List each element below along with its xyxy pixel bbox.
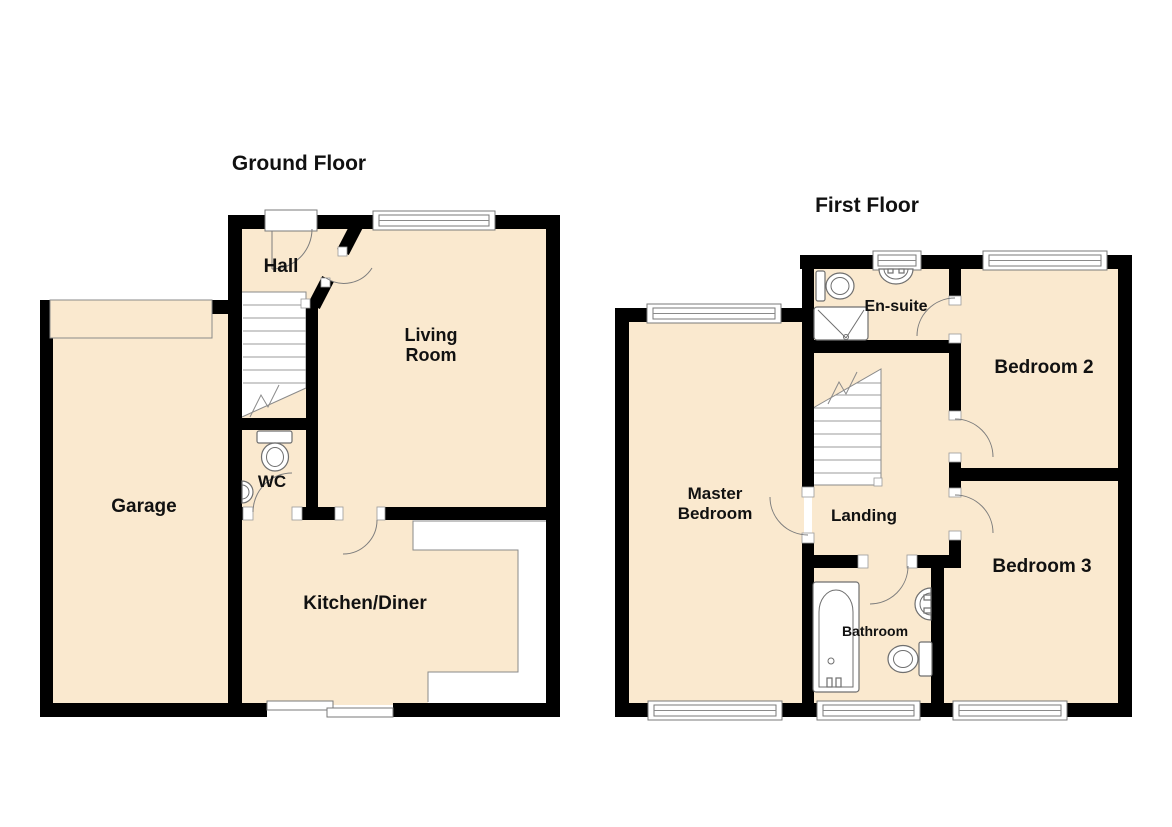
bathroom-label: Bathroom bbox=[842, 623, 908, 639]
first-floor-plan: First Floor En-suite Bedroom 2 Master Be… bbox=[615, 194, 1132, 720]
master-bedroom-label-line1: Master bbox=[688, 484, 743, 503]
floorplan-page: Ground Floor Hall Living Room Garage WC … bbox=[0, 0, 1172, 827]
landing-label: Landing bbox=[831, 506, 897, 525]
bedroom3-window-icon bbox=[953, 701, 1067, 720]
living-room-label-line1: Living bbox=[405, 325, 458, 345]
ground-floor-plan: Ground Floor Hall Living Room Garage WC … bbox=[40, 152, 560, 717]
living-room-window-icon bbox=[373, 211, 495, 230]
bedroom2-label: Bedroom 2 bbox=[994, 357, 1093, 378]
master-bedroom-rear-window-icon bbox=[648, 701, 782, 720]
master-bedroom-label-line2: Bedroom bbox=[678, 504, 753, 523]
shower-icon bbox=[814, 307, 868, 340]
hall-label: Hall bbox=[264, 256, 299, 277]
bedroom2-window-icon bbox=[983, 251, 1107, 270]
garage-door-icon bbox=[50, 300, 212, 338]
ensuite-label: En-suite bbox=[864, 298, 927, 315]
master-bedroom-window-icon bbox=[647, 304, 781, 323]
bathroom-window-icon bbox=[817, 701, 920, 720]
first-floor-title: First Floor bbox=[815, 194, 919, 217]
kitchen-diner-label: Kitchen/Diner bbox=[303, 593, 427, 614]
ground-floor-title: Ground Floor bbox=[232, 152, 366, 175]
living-room-label-line2: Room bbox=[406, 345, 457, 365]
bedroom3-label: Bedroom 3 bbox=[992, 556, 1091, 577]
bathroom-toilet-icon bbox=[888, 642, 932, 676]
garage-label: Garage bbox=[111, 496, 176, 517]
wc-label: WC bbox=[258, 472, 286, 491]
floorplan-drawing: Ground Floor Hall Living Room Garage WC … bbox=[0, 0, 1172, 827]
ensuite-window-icon bbox=[873, 251, 921, 270]
ensuite-toilet-icon bbox=[816, 271, 854, 301]
